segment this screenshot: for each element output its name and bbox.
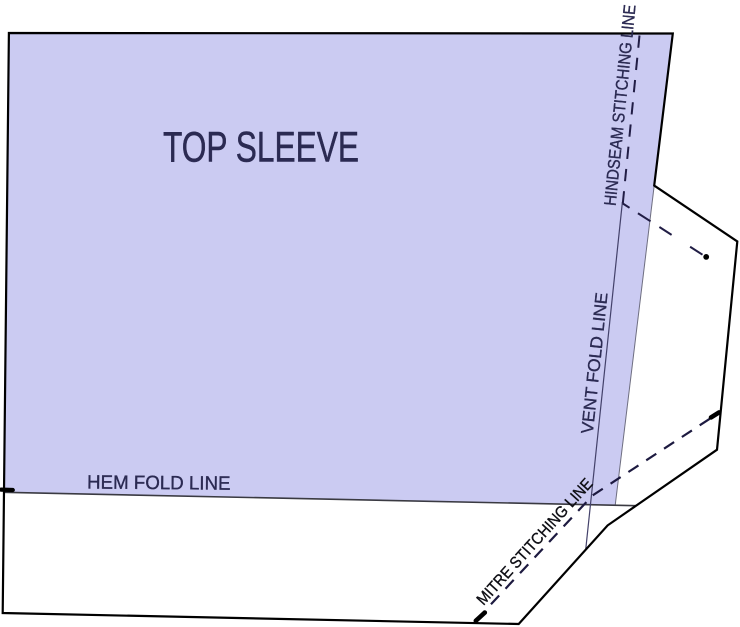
svg-text:TOP SLEEVE: TOP SLEEVE — [163, 125, 359, 172]
svg-text:HEM FOLD LINE: HEM FOLD LINE — [87, 473, 231, 495]
